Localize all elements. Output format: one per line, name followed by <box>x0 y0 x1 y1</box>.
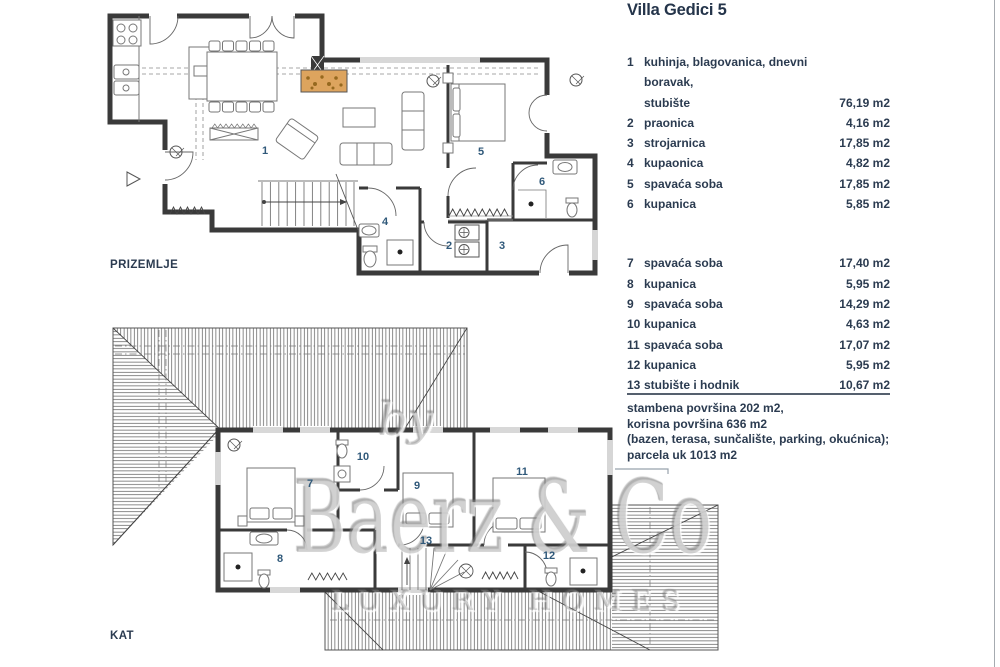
legend-row: 6kupanica5,85 m2 <box>627 194 890 214</box>
room-number-10: 10 <box>357 451 369 463</box>
plan-label-prizemlje: PRIZEMLJE <box>110 259 178 271</box>
room-number-11: 11 <box>516 466 528 478</box>
bathroom6-fixtures <box>518 160 578 218</box>
legend-row: 4kupaonica4,82 m2 <box>627 153 890 173</box>
bedroom5-furniture <box>443 73 505 153</box>
dining-set <box>207 41 277 112</box>
room-number-7: 7 <box>307 478 313 490</box>
room-number-4: 4 <box>382 216 388 228</box>
summary-block: stambena površina 202 m2, korisna površi… <box>627 401 890 463</box>
legend-row: 5spavaća soba17,85 m2 <box>627 174 890 194</box>
room-number-5: 5 <box>478 146 484 158</box>
summary-line: korisna površina 636 m2 <box>627 417 890 433</box>
legend-row: 11spavaća soba17,07 m2 <box>627 335 890 355</box>
summary-line: (bazen, terasa, sunčalište, parking, oku… <box>627 432 890 448</box>
legend-row: 10kupanica4,63 m2 <box>627 314 890 334</box>
room-number-8: 8 <box>277 553 283 565</box>
legend-row: 7spavaća soba17,40 m2 <box>627 253 890 273</box>
legend-row: 8kupanica5,95 m2 <box>627 274 890 294</box>
legend-row: 2praonica4,16 m2 <box>627 113 890 133</box>
room-number-2: 2 <box>446 240 452 252</box>
kitchen-fixtures <box>113 16 216 122</box>
room-number-13: 13 <box>420 535 432 547</box>
room-legend: 1kuhinja, blagovanica, dnevni boravak, s… <box>627 52 890 395</box>
summary-line: stambena površina 202 m2, <box>627 401 890 417</box>
legend-row: 12kupanica5,95 m2 <box>627 355 890 375</box>
room-number-3: 3 <box>499 240 505 252</box>
legend-row: 3strojarnica17,85 m2 <box>627 133 890 153</box>
stairs-prizemlje <box>258 174 358 230</box>
plan-label-kat: KAT <box>110 630 134 642</box>
bathroom4-fixtures <box>359 224 413 267</box>
legend-row: 9spavaća soba14,29 m2 <box>627 294 890 314</box>
legend-row: 1kuhinja, blagovanica, dnevni boravak, s… <box>627 52 890 113</box>
radiator-symbols <box>170 207 508 216</box>
room-number-12: 12 <box>543 550 555 562</box>
separator-line <box>627 393 890 395</box>
room-number-6: 6 <box>539 176 545 188</box>
kat-plan <box>100 315 718 650</box>
room-number-1: 1 <box>262 145 268 157</box>
direction-triangle <box>127 172 140 186</box>
room-number-9: 9 <box>414 480 420 492</box>
page-title: Villa Gedici 5 <box>627 1 727 20</box>
prizemlje-plan <box>110 12 600 278</box>
laundry-machines <box>455 225 479 257</box>
summary-line: parcela uk 1013 m2 <box>627 448 890 464</box>
page-edge-line <box>994 0 995 667</box>
